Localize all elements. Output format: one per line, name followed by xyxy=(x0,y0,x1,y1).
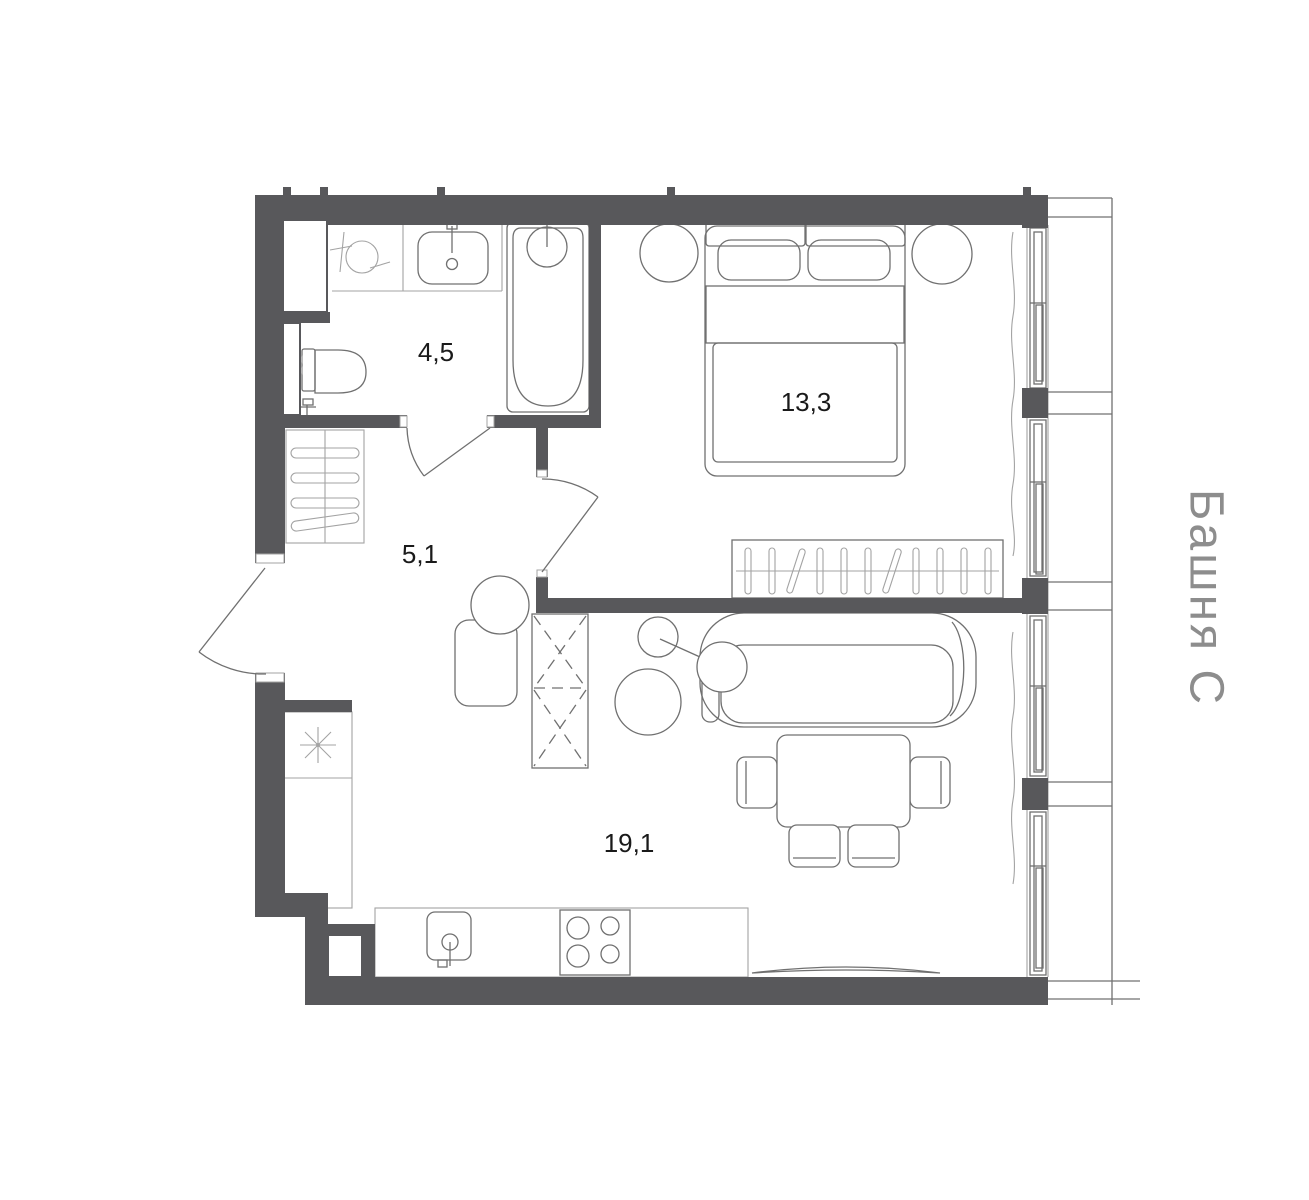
dining-set xyxy=(737,735,950,867)
washing-machine xyxy=(330,232,390,273)
bathroom-sink xyxy=(418,223,488,284)
window-bedroom-1 xyxy=(1030,228,1046,388)
bathroom-counter xyxy=(332,225,502,291)
window-bedroom-2 xyxy=(1030,420,1046,576)
bathroom-area-label: 4,5 xyxy=(418,337,454,367)
double-bed xyxy=(705,222,905,476)
tower-label: Башня С xyxy=(1180,489,1233,707)
coffee-pouf xyxy=(615,669,681,735)
floor-plan: 4,5 5,1 13,3 19,1 Башня С xyxy=(0,0,1309,1200)
bathroom-door xyxy=(400,416,494,476)
blanket xyxy=(706,286,904,343)
curtain-bedroom xyxy=(1012,232,1015,556)
pouf-hallway xyxy=(471,576,529,634)
wardrobe-hangers xyxy=(732,540,1003,598)
dining-chair-right xyxy=(910,757,950,808)
toilet xyxy=(296,349,366,393)
living-kitchen-area-label: 19,1 xyxy=(604,828,655,858)
dining-chair-left xyxy=(737,757,777,808)
shaft-niche-toilet xyxy=(283,323,300,415)
kitchen-sink xyxy=(427,912,471,967)
shoe-shelf-rack xyxy=(286,430,364,543)
curtain-living xyxy=(1012,632,1015,884)
bathtub xyxy=(507,212,589,412)
window-living-1 xyxy=(1030,616,1046,776)
entrance-door xyxy=(199,554,284,682)
bedroom-area-label: 13,3 xyxy=(781,387,832,417)
window-living-2 xyxy=(1030,812,1046,975)
tv xyxy=(752,967,940,973)
kitchen-counter-left xyxy=(284,712,352,908)
nightstand-right xyxy=(912,224,972,284)
fridge-star-symbol xyxy=(300,727,336,763)
hallway-area-label: 5,1 xyxy=(402,539,438,569)
wardrobe-x-cabinet xyxy=(532,614,588,768)
shaft-niche-kitchen xyxy=(328,935,362,977)
nightstand-left xyxy=(640,224,698,282)
dining-table xyxy=(777,735,910,827)
walls xyxy=(255,187,1048,1005)
stove xyxy=(560,910,630,975)
dining-chair-bottom-2 xyxy=(848,825,899,867)
shaft-niche-top xyxy=(283,220,327,312)
kitchen-counter-bottom xyxy=(375,908,748,977)
bedroom-door xyxy=(537,470,598,577)
dining-chair-bottom-1 xyxy=(789,825,840,867)
